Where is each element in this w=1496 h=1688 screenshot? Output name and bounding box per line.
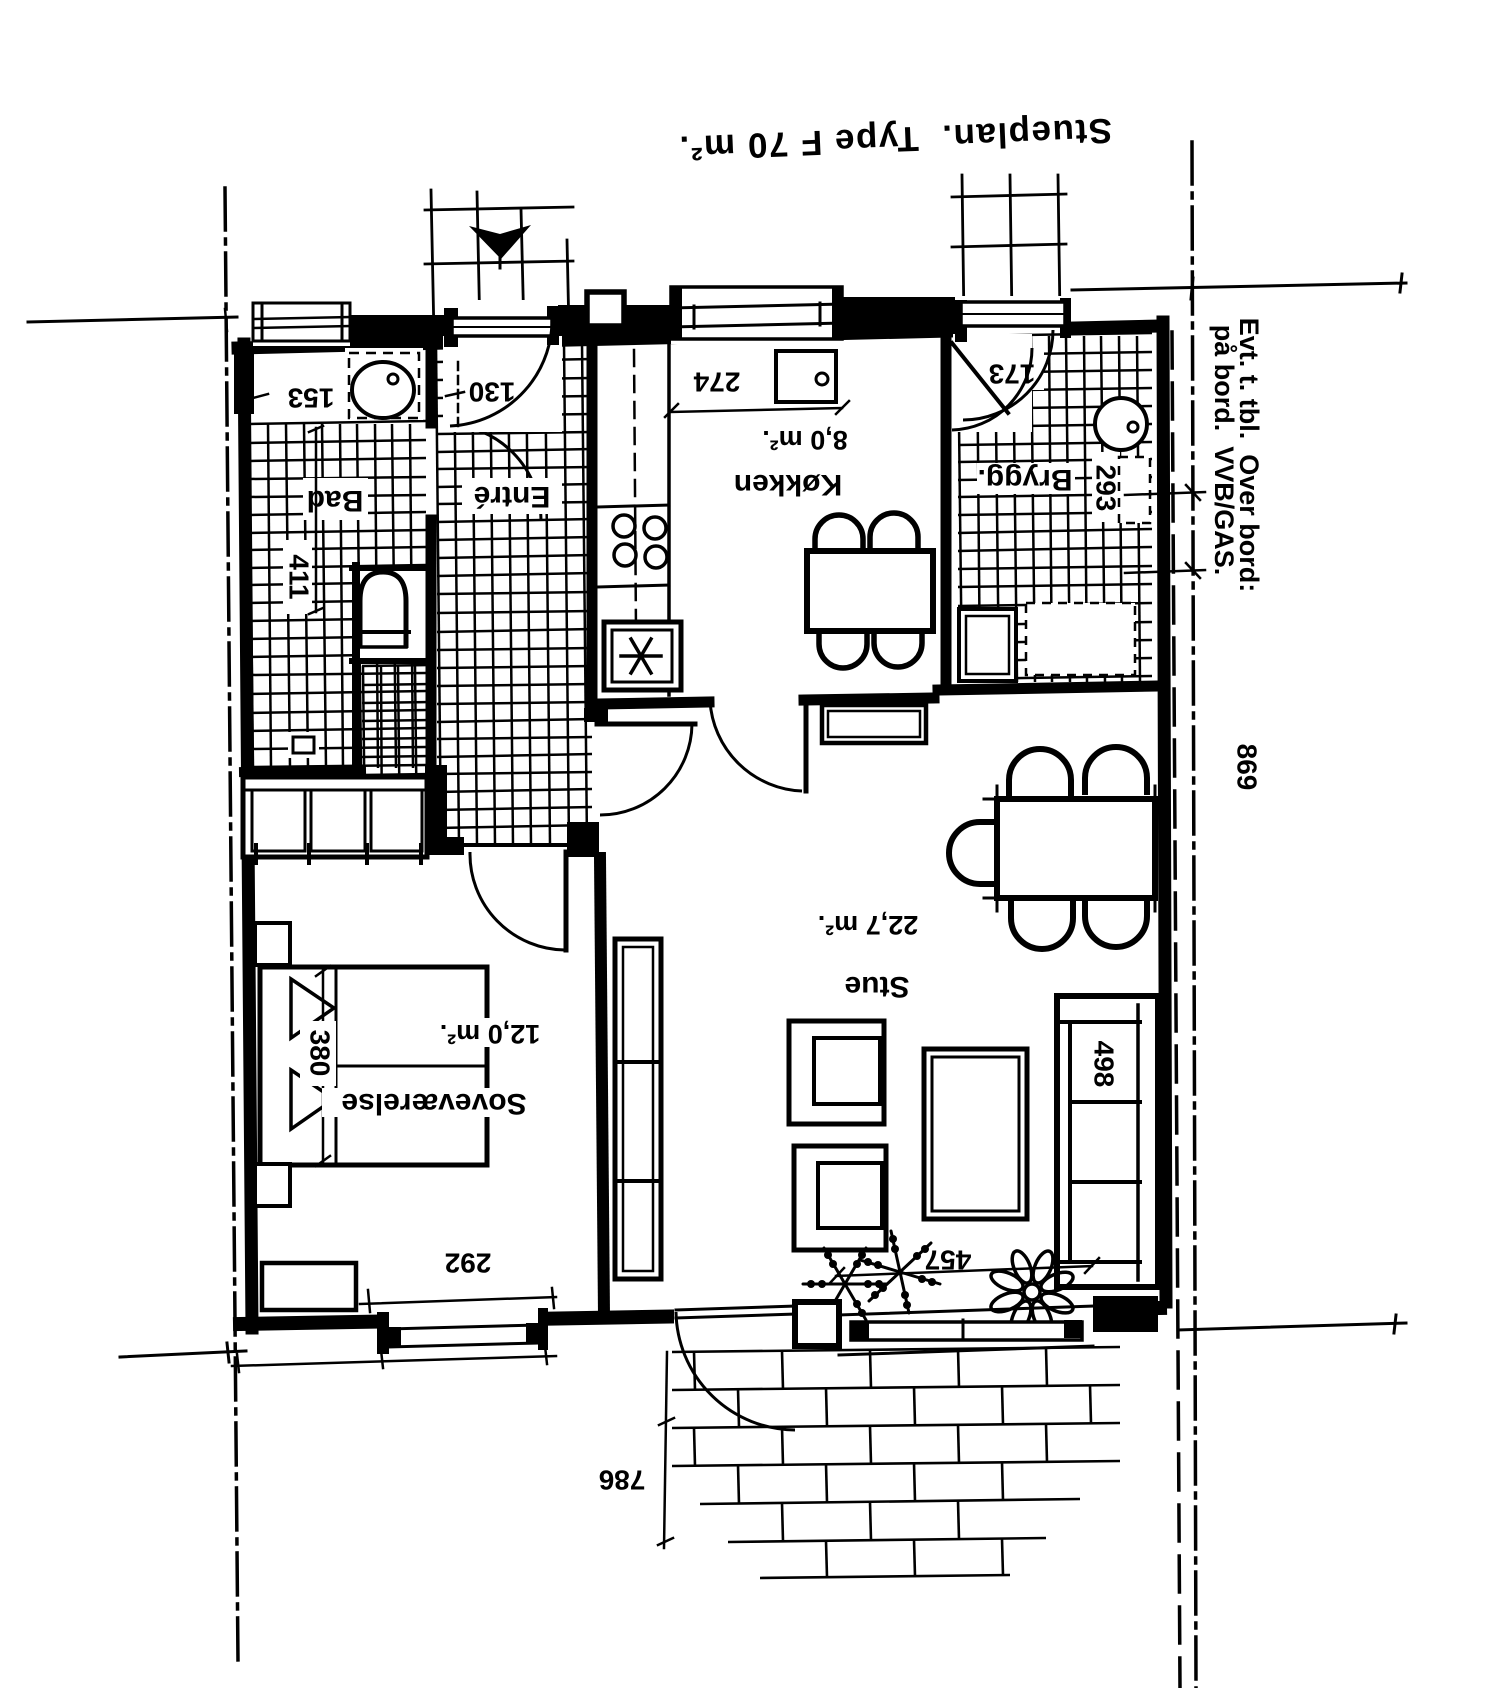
svg-text:Køkken: Køkken — [734, 468, 842, 501]
svg-text:130: 130 — [469, 377, 516, 408]
svg-text:på bord. VVB/GAS.: på bord. VVB/GAS. — [1209, 325, 1239, 576]
svg-text:8,0 m².: 8,0 m². — [762, 425, 848, 455]
svg-text:292: 292 — [445, 1248, 492, 1279]
svg-text:12,0 m².: 12,0 m². — [440, 1019, 541, 1049]
svg-text:498: 498 — [1089, 1041, 1120, 1088]
svg-text:380: 380 — [305, 1030, 336, 1077]
svg-text:457: 457 — [925, 1245, 972, 1276]
svg-text:Soveværelse: Soveværelse — [341, 1087, 526, 1120]
svg-text:Brygg.: Brygg. — [977, 463, 1072, 496]
svg-text:786: 786 — [599, 1465, 646, 1496]
svg-text:293: 293 — [1091, 465, 1122, 512]
svg-text:274: 274 — [693, 367, 740, 398]
svg-text:22,7 m².: 22,7 m². — [818, 910, 919, 940]
svg-text:869: 869 — [1232, 744, 1263, 791]
svg-text:Stue: Stue — [844, 970, 909, 1003]
svg-text:411: 411 — [284, 554, 315, 599]
svg-text:Entré: Entré — [474, 480, 551, 513]
svg-text:153: 153 — [288, 383, 335, 414]
